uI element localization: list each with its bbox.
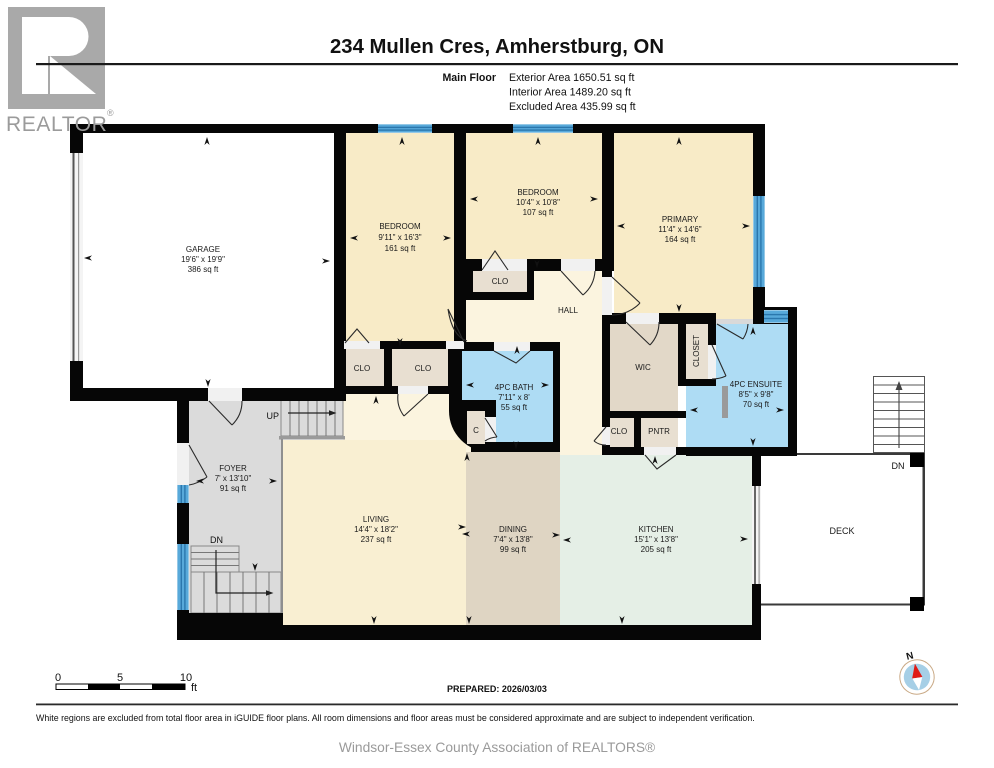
- svg-text:19'6" x 19'9": 19'6" x 19'9": [181, 255, 225, 264]
- svg-text:14'4" x 18'2": 14'4" x 18'2": [354, 525, 398, 534]
- svg-text:237 sq ft: 237 sq ft: [361, 535, 392, 544]
- svg-text:BEDROOM: BEDROOM: [517, 188, 559, 197]
- svg-text:11'4" x 14'6": 11'4" x 14'6": [658, 225, 701, 234]
- svg-text:HALL: HALL: [558, 306, 579, 315]
- svg-text:Interior Area 1489.20 sq ft: Interior Area 1489.20 sq ft: [509, 87, 631, 99]
- svg-text:DECK: DECK: [829, 526, 854, 536]
- svg-text:CLO: CLO: [415, 364, 431, 373]
- svg-text:205 sq ft: 205 sq ft: [641, 545, 672, 554]
- svg-text:107 sq ft: 107 sq ft: [523, 208, 554, 217]
- svg-text:ft: ft: [191, 682, 197, 694]
- svg-text:Windsor-Essex County Associati: Windsor-Essex County Association of REAL…: [339, 740, 655, 755]
- svg-text:KITCHEN: KITCHEN: [638, 525, 673, 534]
- svg-text:Main Floor: Main Floor: [442, 72, 496, 84]
- svg-text:15'1" x 13'8": 15'1" x 13'8": [634, 535, 678, 544]
- svg-text:234 Mullen Cres, Amherstburg,: 234 Mullen Cres, Amherstburg, ON: [330, 36, 664, 58]
- svg-text:91 sq ft: 91 sq ft: [220, 484, 247, 493]
- svg-text:4PC ENSUITE: 4PC ENSUITE: [730, 380, 782, 389]
- svg-text:7'4" x 13'8": 7'4" x 13'8": [493, 535, 533, 544]
- svg-text:FOYER: FOYER: [219, 464, 247, 473]
- svg-text:70 sq ft: 70 sq ft: [743, 400, 770, 409]
- svg-text:0: 0: [55, 672, 61, 684]
- svg-text:CLOSET: CLOSET: [692, 335, 701, 367]
- svg-text:10'4" x 10'8": 10'4" x 10'8": [516, 198, 560, 207]
- svg-text:GARAGE: GARAGE: [186, 245, 220, 254]
- svg-text:386 sq ft: 386 sq ft: [188, 265, 219, 274]
- svg-text:BEDROOM: BEDROOM: [379, 222, 421, 231]
- svg-text:CLO: CLO: [492, 277, 508, 286]
- svg-text:PREPARED: 2026/03/03: PREPARED: 2026/03/03: [447, 684, 547, 694]
- svg-text:99 sq ft: 99 sq ft: [500, 545, 527, 554]
- svg-text:9'11" x 16'3": 9'11" x 16'3": [378, 233, 421, 242]
- svg-text:Exterior Area 1650.51 sq ft: Exterior Area 1650.51 sq ft: [509, 72, 634, 84]
- svg-text:DN: DN: [210, 535, 223, 545]
- svg-text:®: ®: [107, 108, 114, 118]
- svg-text:CLO: CLO: [354, 364, 370, 373]
- svg-text:REALTOR: REALTOR: [6, 113, 107, 136]
- svg-text:8'5" x 9'8": 8'5" x 9'8": [739, 390, 774, 399]
- svg-text:UP: UP: [266, 411, 279, 421]
- svg-text:WIC: WIC: [635, 363, 651, 372]
- svg-text:161 sq ft: 161 sq ft: [385, 244, 416, 253]
- svg-text:55 sq ft: 55 sq ft: [501, 403, 528, 412]
- svg-text:164 sq ft: 164 sq ft: [665, 235, 696, 244]
- svg-text:7' x 13'10": 7' x 13'10": [215, 474, 252, 483]
- svg-text:4PC BATH: 4PC BATH: [495, 383, 534, 392]
- svg-text:PNTR: PNTR: [648, 427, 670, 436]
- svg-text:LIVING: LIVING: [363, 515, 389, 524]
- svg-text:C: C: [473, 426, 479, 435]
- svg-text:PRIMARY: PRIMARY: [662, 215, 699, 224]
- svg-text:CLO: CLO: [611, 427, 627, 436]
- svg-text:DN: DN: [892, 461, 905, 471]
- svg-text:5: 5: [117, 672, 123, 684]
- svg-text:7'11" x 8': 7'11" x 8': [498, 393, 530, 402]
- svg-text:White regions are excluded fro: White regions are excluded from total fl…: [36, 713, 755, 723]
- svg-text:DINING: DINING: [499, 525, 527, 534]
- svg-text:Excluded Area 435.99 sq ft: Excluded Area 435.99 sq ft: [509, 101, 636, 113]
